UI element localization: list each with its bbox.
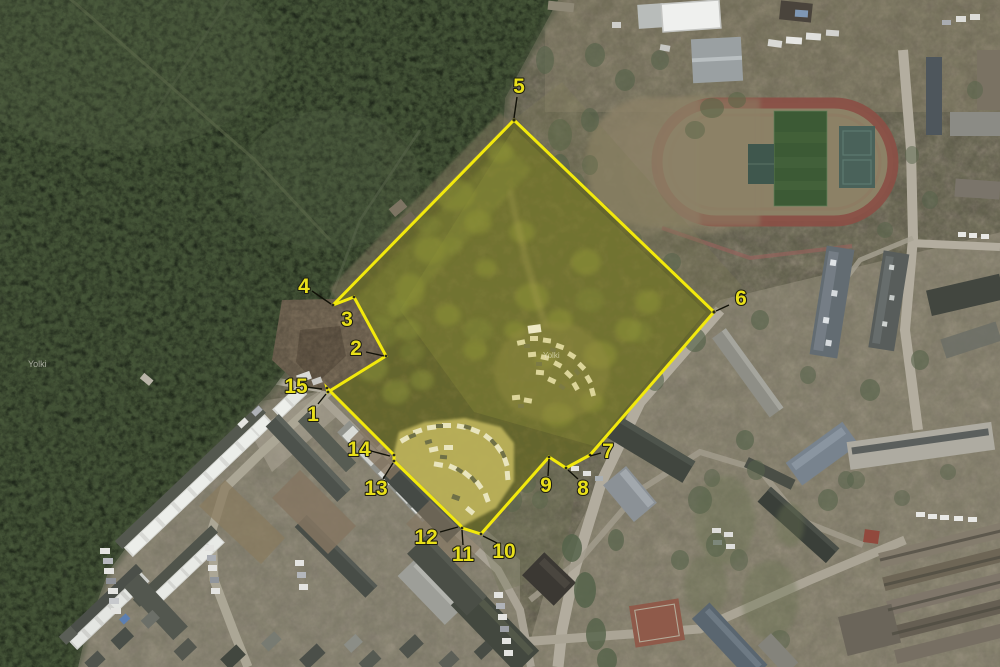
svg-text:2: 2 [350,337,362,360]
svg-text:15: 15 [284,375,308,398]
svg-text:9: 9 [540,474,552,497]
svg-text:1: 1 [307,403,319,426]
svg-text:3: 3 [341,308,353,331]
svg-text:12: 12 [414,526,437,549]
svg-text:Yolki: Yolki [28,359,47,369]
svg-text:5: 5 [513,75,525,98]
svg-text:14: 14 [347,438,371,461]
svg-text:8: 8 [577,477,589,500]
svg-text:11: 11 [452,543,475,566]
svg-text:6: 6 [735,287,747,310]
svg-text:10: 10 [492,540,515,563]
svg-text:7: 7 [602,440,614,463]
svg-text:4: 4 [298,275,310,298]
svg-text:13: 13 [364,477,387,500]
